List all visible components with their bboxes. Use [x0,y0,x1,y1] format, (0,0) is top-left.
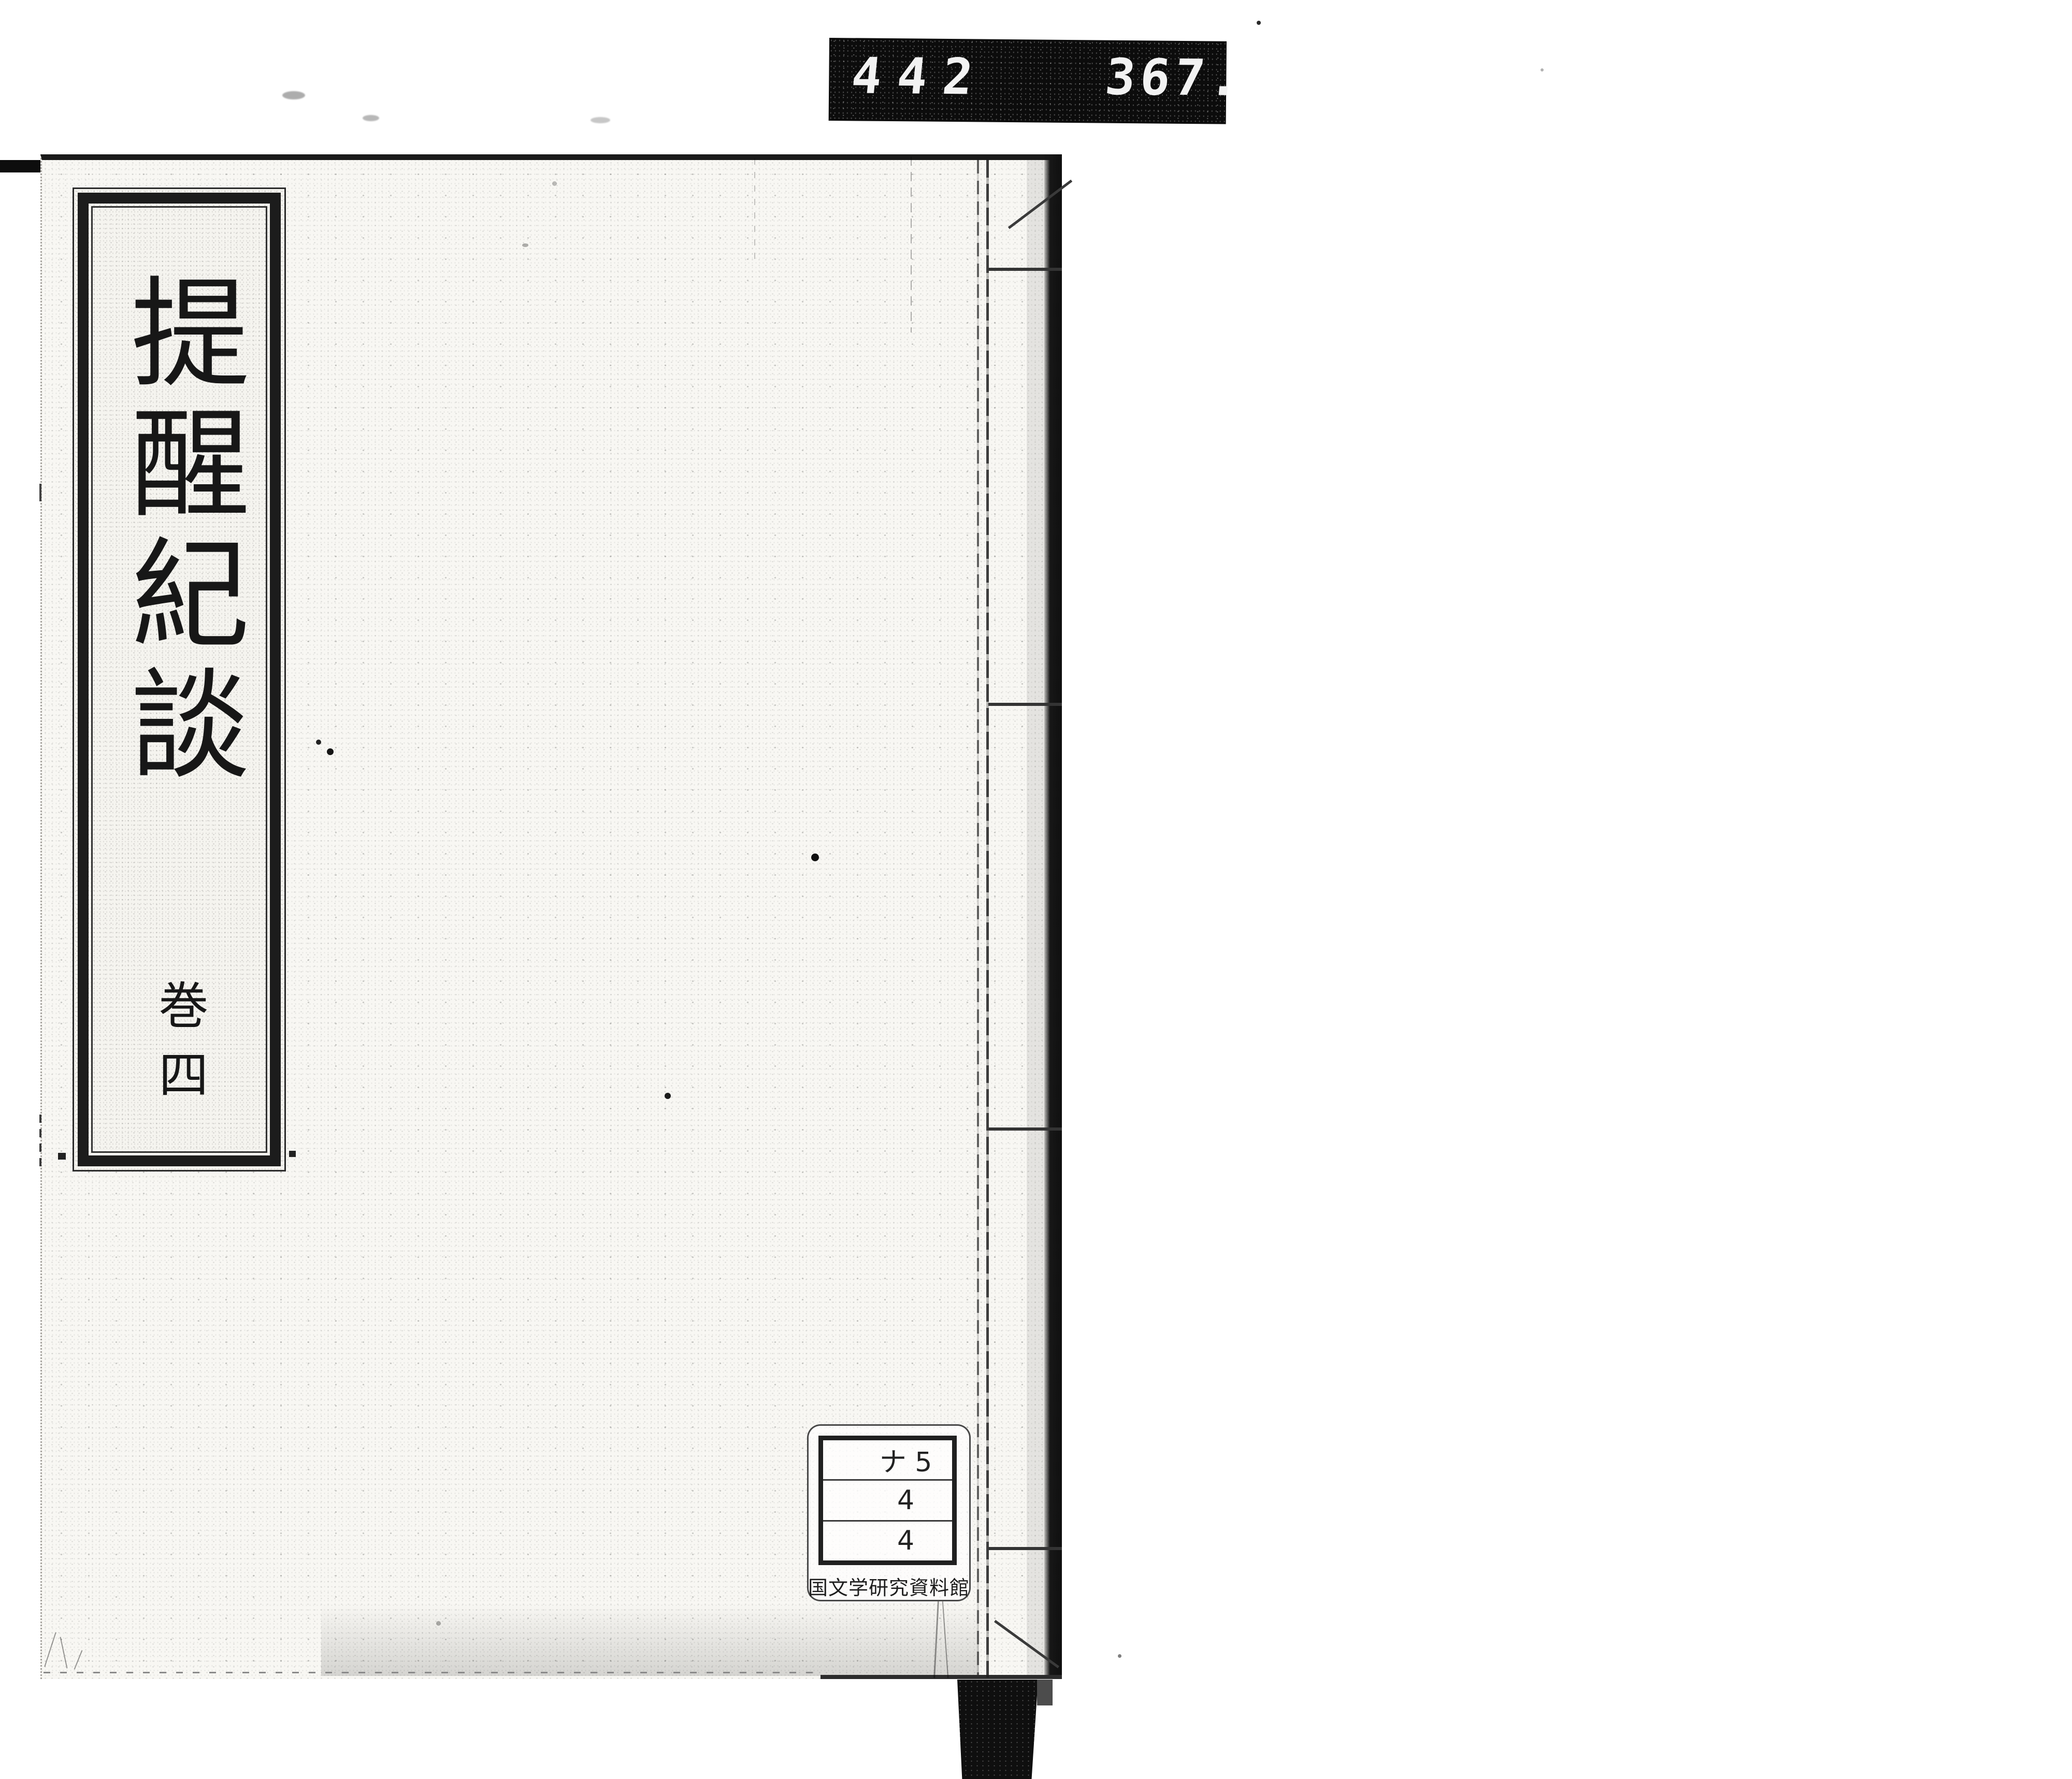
stain-dot [552,181,557,186]
stain-dot [1541,68,1544,71]
title-text: 提醒紀談 [120,271,239,793]
stain-dot [327,748,334,755]
call-number-value: ナ 5 [880,1440,932,1479]
stain-dot [363,115,379,121]
call-number-row: ナ 5 [823,1440,952,1481]
frame-counter-bar: 442 367. [829,38,1227,124]
stain-dot [1118,1654,1121,1658]
call-number-row: 4 [823,1522,952,1560]
stain-dot [316,740,321,745]
label-corner-tick-right [289,1151,296,1157]
call-number-box: ナ 5 4 4 [818,1436,957,1565]
stain-dot [811,854,819,861]
book-right-edge [1044,154,1062,1679]
title-label-inner-rule: 提醒紀談 巻四 [91,206,267,1153]
book-bottom-edge-faint [44,1672,821,1673]
call-number-label: ナ 5 4 4 国文学研究資料館 [807,1424,971,1601]
spine-tab [957,1680,1038,1779]
book-bottom-edge-dark [821,1675,1062,1679]
book-bottom-shading [321,1603,979,1676]
counter-left-number: 442 [850,51,991,102]
stain-dot [665,1093,671,1099]
title-label-frame: 提醒紀談 巻四 [78,193,281,1166]
left-edge-mark [39,1115,41,1171]
label-corner-tick-left [58,1153,66,1160]
binding-stitch [988,1127,1062,1131]
stain-dot [436,1621,441,1626]
counter-right-number: 367. [1103,52,1246,103]
fold-streak [754,158,755,262]
call-number-value: 4 [897,1485,914,1516]
book-right-edge-shadow [1027,160,1044,1675]
stain-dot [591,117,610,123]
institution-name: 国文学研究資料館 [804,1572,973,1600]
call-number-row: 4 [823,1481,952,1521]
volume-text: 巻四 [154,979,204,1118]
spine-tab-shadow [1037,1680,1053,1705]
fold-streak [911,156,912,332]
scanner-edge-artifact [0,160,42,172]
binding-stitch [988,703,1062,706]
call-number-value: 4 [897,1525,914,1556]
binding-crease-line [986,160,989,1677]
left-edge-mark [39,484,41,501]
binding-stitch [988,1547,1062,1550]
scan-page: 442 367. 提醒紀談 巻四 ナ 5 4 [0,0,2072,1779]
stain-dot [282,91,305,99]
title-label: 提醒紀談 巻四 [73,187,286,1171]
stain-dot [522,243,528,247]
binding-crease [977,160,979,1677]
stain-dot [1257,21,1261,25]
binding-stitch [988,268,1062,271]
